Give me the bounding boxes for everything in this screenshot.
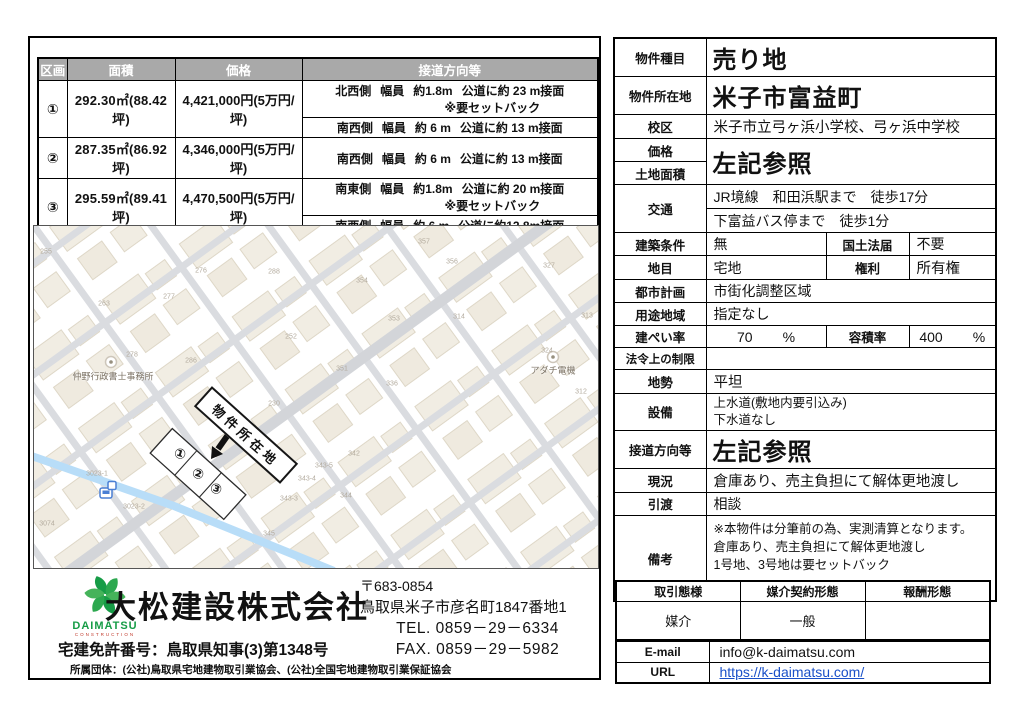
road-direction: 南西側 xyxy=(337,150,373,167)
value-terrain: 平坦 xyxy=(706,370,996,394)
label-email: E-mail xyxy=(616,641,709,662)
txn-value-contract: 一般 xyxy=(740,602,865,640)
poi-marker-office xyxy=(106,357,117,368)
contact-table: E-mail info@k-daimatsu.com URL https://k… xyxy=(615,640,991,684)
parcel-number: 324 xyxy=(541,348,553,355)
value-location: 米子市富益町 xyxy=(706,77,996,115)
poi-label-electronics: アダチ電機 xyxy=(530,364,575,377)
parcel-number: 351 xyxy=(336,366,348,373)
value-city-planning: 市街化調整区域 xyxy=(706,280,996,303)
far-value: 400 xyxy=(919,329,942,345)
road-width-label: 幅員 xyxy=(380,180,404,197)
bcr-unit: % xyxy=(783,329,795,345)
lot-area-2: 287.35㎡(86.92坪) xyxy=(67,138,175,179)
lot-number-2: ② xyxy=(38,138,67,179)
far-unit: % xyxy=(973,329,985,345)
parcel-number: 356 xyxy=(446,259,458,266)
road-note: 公道に約 20 m接面 xyxy=(462,180,565,197)
label-transport: 交通 xyxy=(614,185,706,233)
parcel-number: 344 xyxy=(340,493,352,500)
parcel-number: 286 xyxy=(185,358,197,365)
parcel-number: 277 xyxy=(163,294,175,301)
parcel-number: 3023-1 xyxy=(86,471,108,478)
value-current-state: 倉庫あり、売主負担にて解体更地渡し xyxy=(706,468,996,492)
value-road-access: 左記参照 xyxy=(706,430,996,468)
lot-price-1: 4,421,000円(5万円/坪) xyxy=(175,81,302,138)
label-building-condition: 建築条件 xyxy=(614,233,706,256)
parcel-number: 343-4 xyxy=(298,476,316,483)
label-legal-restrictions: 法令上の制限 xyxy=(614,348,706,370)
label-property-type: 物件種目 xyxy=(614,38,706,77)
address-line: 鳥取県米子市彦名町1847番地1 xyxy=(360,597,595,618)
parcel-number: 353 xyxy=(388,316,400,323)
lot-price-2: 4,346,000円(5万円/坪) xyxy=(175,138,302,179)
property-flyer-page: 区画 面積 価格 接道方向等 ① 292.30㎡(88.42坪) 4,421,0… xyxy=(0,0,1024,724)
value-transport-1: JR境線 和田浜駅まで 徒歩17分 xyxy=(706,185,996,209)
parcel-number: 357 xyxy=(418,239,430,246)
label-utilities: 設備 xyxy=(614,394,706,431)
road-direction: 南西側 xyxy=(337,119,373,136)
parcel-number: 255 xyxy=(40,249,52,256)
label-price: 価格 xyxy=(614,139,706,162)
road-width: 約 6 m xyxy=(415,150,451,167)
company-address-block: 〒683-0854 鳥取県米子市彦名町1847番地1 TEL. 0859－29－… xyxy=(360,576,595,660)
label-zoning: 用途地域 xyxy=(614,303,706,326)
parcel-number: 345 xyxy=(263,531,275,538)
value-zoning: 指定なし xyxy=(706,303,996,326)
label-terrain: 地勢 xyxy=(614,370,706,394)
company-name: 大松建設株式会社 xyxy=(105,582,369,627)
price-header-lot: 区画 xyxy=(38,58,67,81)
tel-number: TEL. 0859－29－6334 xyxy=(360,618,595,639)
road-width: 約1.8m xyxy=(413,82,452,99)
value-property-type: 売り地 xyxy=(706,38,996,77)
parcel-number: 288 xyxy=(268,269,280,276)
associations: 所属団体：(公社)鳥取県宅地建物取引業協会、(公社)全国宅地建物取引業保証協会 xyxy=(70,662,452,677)
parcel-number: 312 xyxy=(575,389,587,396)
label-road-access: 接道方向等 xyxy=(614,430,706,468)
parcel-number: 336 xyxy=(386,381,398,388)
road-note: 公道に約 13 m接面 xyxy=(460,150,563,167)
lot-number-1: ① xyxy=(38,81,67,138)
txn-header-contract: 媒介契約形態 xyxy=(740,581,865,602)
spec-table: 物件種目 売り地 物件所在地 米子市富益町 校区 米子市立弓ヶ浜小学校、弓ヶ浜中… xyxy=(613,37,997,602)
parcel-number: 252 xyxy=(285,334,297,341)
bcr-value: 70 xyxy=(737,329,753,345)
road-direction: 北西側 xyxy=(335,82,371,99)
road-width: 約1.8m xyxy=(413,180,452,197)
road-access-3a: 南東側 幅員 約1.8m 公道に約 20 m接面 ※要セットバック xyxy=(302,179,598,216)
label-city-planning: 都市計画 xyxy=(614,280,706,303)
road-access-2: 南西側 幅員 約 6 m 公道に約 13 m接面 xyxy=(302,138,598,179)
label-floor-area-ratio: 容積率 xyxy=(826,326,909,348)
road-width: 約 6 m xyxy=(415,119,451,136)
label-rights: 権利 xyxy=(826,256,909,280)
parcel-number: 276 xyxy=(195,268,207,275)
map-street-grid xyxy=(34,226,598,568)
road-access-1a: 北西側 幅員 約1.8m 公道に約 23 m接面 ※要セットバック xyxy=(302,81,598,118)
parcel-number: 3074 xyxy=(39,521,55,528)
parcel-number: 343-5 xyxy=(315,463,333,470)
label-current-state: 現況 xyxy=(614,468,706,492)
poi-label-office: 仲野行政書士事務所 xyxy=(72,370,153,383)
price-header-price: 価格 xyxy=(175,58,302,81)
value-legal-restrictions xyxy=(706,348,996,370)
company-section: DAIMATSU CONSTRUCTION 大松建設株式会社 宅建免許番号：鳥取… xyxy=(30,568,599,678)
parcel-number: 343-3 xyxy=(280,496,298,503)
remarks-line-2: 倉庫あり、売主負担にて解体更地渡し xyxy=(714,538,989,556)
value-handover: 相談 xyxy=(706,492,996,515)
parcel-number: 354 xyxy=(356,278,368,285)
fax-number: FAX. 0859－29－5982 xyxy=(360,639,595,660)
label-kokudo: 国土法届 xyxy=(826,233,909,256)
company-url-link[interactable]: https://k-daimatsu.com/ xyxy=(720,664,865,680)
value-kokudo: 不要 xyxy=(909,233,996,256)
value-transport-2: 下富益バス停まで 徒歩1分 xyxy=(706,209,996,233)
transaction-table: 取引態様 媒介契約形態 報酬形態 媒介 一般 xyxy=(615,580,991,641)
value-floor-area-ratio: 400% xyxy=(909,326,996,348)
road-note: 公道に約 23 m接面 xyxy=(462,82,565,99)
license-number: 宅建免許番号：鳥取県知事(3)第1348号 xyxy=(58,638,328,660)
label-land-area: 土地面積 xyxy=(614,162,706,185)
value-email: info@k-daimatsu.com xyxy=(709,641,990,662)
txn-value-fee xyxy=(865,602,990,640)
txn-header-type: 取引態様 xyxy=(616,581,740,602)
postal-code: 〒683-0854 xyxy=(360,576,595,597)
txn-value-type: 媒介 xyxy=(616,602,740,640)
parcel-number: 313 xyxy=(581,313,593,320)
value-building-condition: 無 xyxy=(706,233,826,256)
parcel-number: 342 xyxy=(348,451,360,458)
lot-area-1: 292.30㎡(88.42坪) xyxy=(67,81,175,138)
parcel-number: 314 xyxy=(453,314,465,321)
label-school-district: 校区 xyxy=(614,115,706,139)
parcel-number: 230 xyxy=(268,401,280,408)
road-setback-note: ※要セットバック xyxy=(305,99,596,116)
road-note: 公道に約 13 m接面 xyxy=(460,119,563,136)
label-url: URL xyxy=(616,662,709,683)
utilities-line-1: 上水道(敷地内要引込み) xyxy=(714,395,995,412)
location-map: 255 263 277 276 288 286 252 278 230 357 … xyxy=(33,225,599,569)
label-location: 物件所在地 xyxy=(614,77,706,115)
value-land-category: 宅地 xyxy=(706,256,826,280)
price-table: 区画 面積 価格 接道方向等 ① 292.30㎡(88.42坪) 4,421,0… xyxy=(37,57,599,238)
parcel-number: 327 xyxy=(543,263,555,270)
road-width-label: 幅員 xyxy=(380,82,404,99)
remarks-line-3: 1号地、3号地は要セットバック xyxy=(714,556,989,574)
value-school-district: 米子市立弓ヶ浜小学校、弓ヶ浜中学校 xyxy=(706,115,996,139)
logo-subtext: CONSTRUCTION xyxy=(55,631,155,638)
road-width-label: 幅員 xyxy=(382,119,406,136)
value-rights: 所有権 xyxy=(909,256,996,280)
label-building-coverage: 建ぺい率 xyxy=(614,326,706,348)
txn-header-fee: 報酬形態 xyxy=(865,581,990,602)
label-handover: 引渡 xyxy=(614,492,706,515)
map-canvas xyxy=(34,226,598,568)
value-price-see-left: 左記参照 xyxy=(706,139,996,185)
road-access-1b: 南西側 幅員 約 6 m 公道に約 13 m接面 xyxy=(302,118,598,138)
value-url: https://k-daimatsu.com/ xyxy=(709,662,990,683)
value-utilities: 上水道(敷地内要引込み) 下水道なし xyxy=(706,394,996,431)
label-land-category: 地目 xyxy=(614,256,706,280)
parcel-number: 278 xyxy=(126,352,138,359)
price-header-area: 面積 xyxy=(67,58,175,81)
value-building-coverage: 70% xyxy=(706,326,826,348)
road-direction: 南東側 xyxy=(335,180,371,197)
utilities-line-2: 下水道なし xyxy=(714,412,995,429)
parcel-number: 3023-2 xyxy=(123,504,145,511)
price-header-road: 接道方向等 xyxy=(302,58,598,81)
road-width-label: 幅員 xyxy=(382,150,406,167)
parcel-number: 263 xyxy=(98,301,110,308)
remarks-line-1: ※本物件は分筆前の為、実測清算となります。 xyxy=(714,520,989,538)
left-panel: 区画 面積 価格 接道方向等 ① 292.30㎡(88.42坪) 4,421,0… xyxy=(28,36,601,680)
road-setback-note: ※要セットバック xyxy=(305,197,596,214)
